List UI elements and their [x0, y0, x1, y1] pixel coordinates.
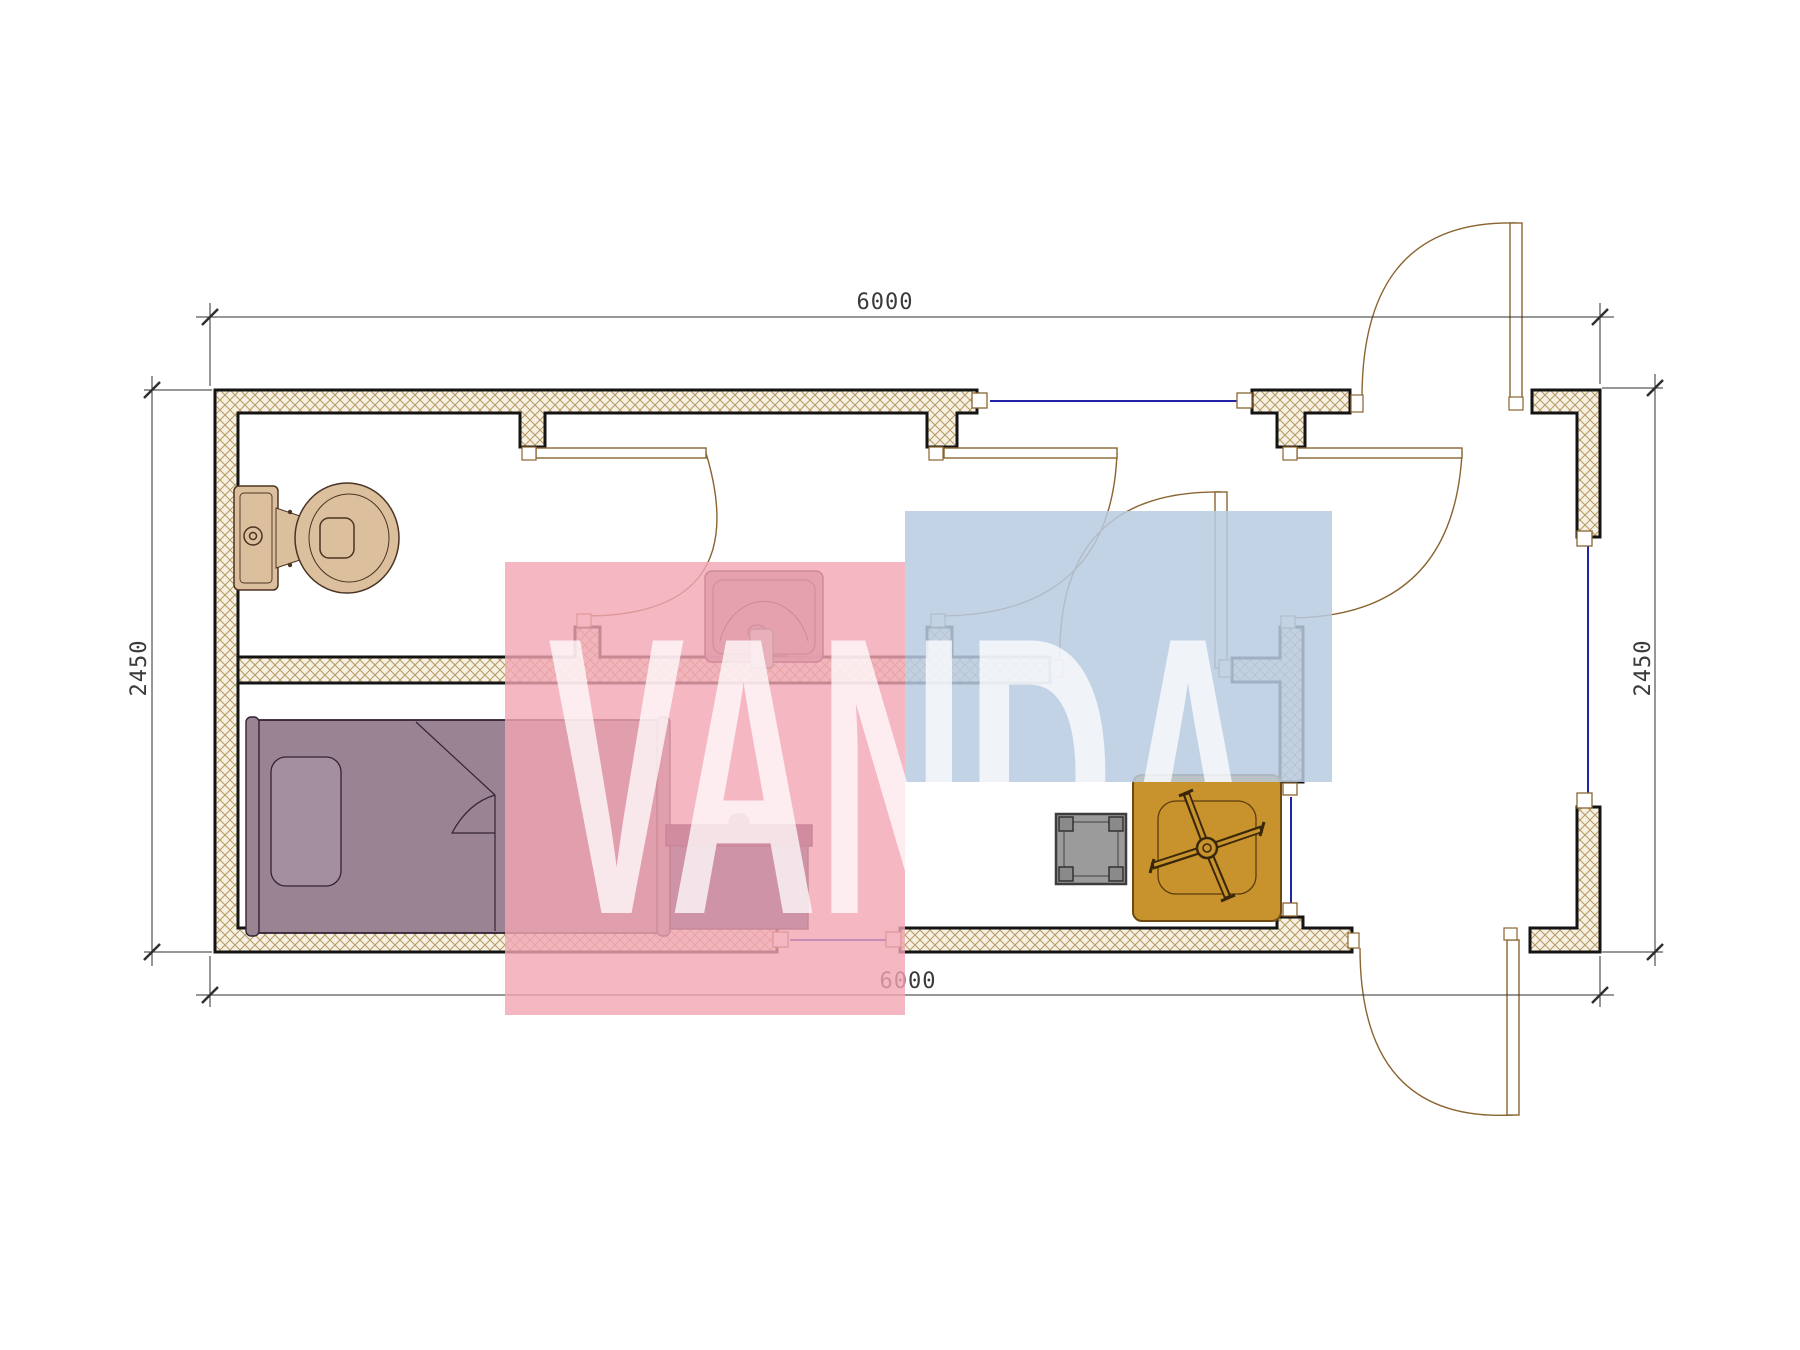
window-frame-icon — [1577, 531, 1592, 546]
door-leaf-icon — [1510, 223, 1522, 402]
dim-label-left: 2450 — [127, 640, 152, 697]
wall-bottom-right-corner — [1530, 807, 1600, 952]
door-arc-entrance-bottom — [1360, 948, 1513, 1115]
stool-icon — [1056, 814, 1126, 884]
dim-label-right: 2450 — [1631, 640, 1656, 697]
window-frame-icon — [1283, 783, 1297, 795]
wall-bottom-middle — [900, 917, 1352, 952]
toilet-icon — [234, 483, 399, 593]
door-frame-icon — [1351, 395, 1363, 412]
door-leaf-icon — [1297, 448, 1462, 458]
door-frame-icon — [929, 447, 943, 460]
door-frame-icon — [1509, 397, 1523, 410]
door-leaf-icon — [1507, 940, 1519, 1115]
window-frame-icon — [1283, 903, 1297, 916]
dim-label-top: 6000 — [857, 290, 914, 315]
table-icon — [1133, 775, 1281, 921]
window-frame-icon — [1577, 793, 1592, 808]
door-frame-icon — [522, 447, 536, 460]
door-leaf-icon — [536, 448, 706, 458]
door-frame-icon — [1348, 933, 1359, 948]
floor-plan-drawing: 6000 6000 2450 2450 VANDA — [0, 0, 1800, 1350]
wall-top-right-corner — [1532, 390, 1600, 537]
door-arc-entrance-top — [1362, 223, 1516, 398]
wall-top-t-piece — [1252, 390, 1350, 447]
door-frame-icon — [1504, 928, 1517, 940]
door-leaf-icon — [944, 448, 1117, 458]
window-frame-icon — [972, 393, 987, 408]
floor-plan-page: 6000 6000 2450 2450 VANDA — [0, 0, 1800, 1350]
window-frame-icon — [1237, 393, 1252, 408]
door-frame-icon — [1283, 447, 1297, 460]
